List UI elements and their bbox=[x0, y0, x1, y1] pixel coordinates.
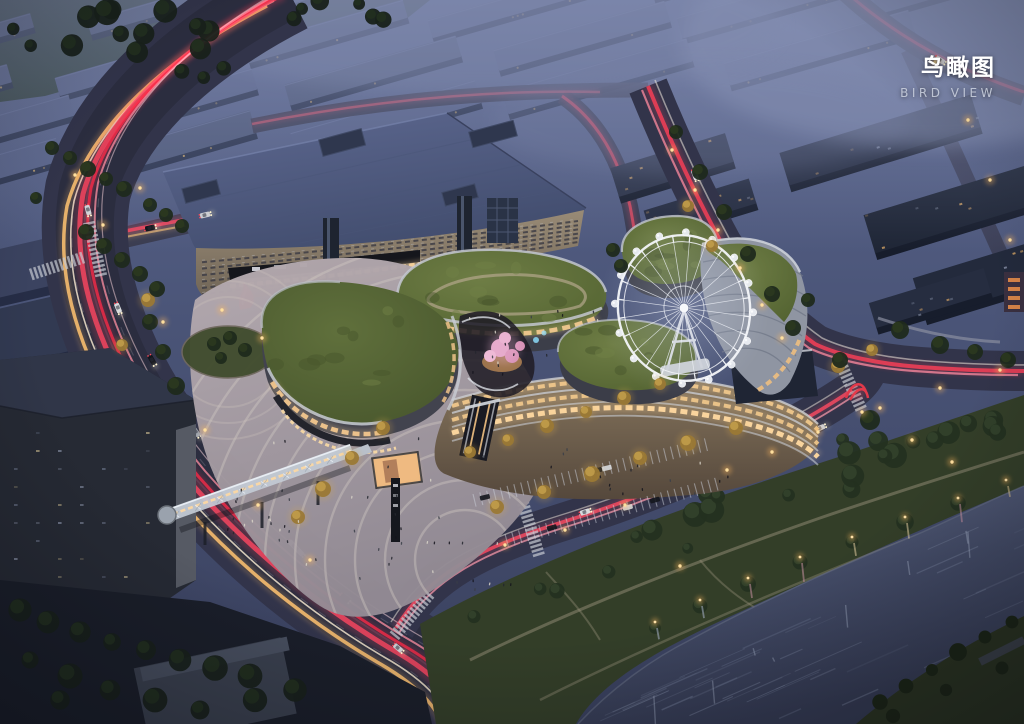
annotation-title-en: BIRD VIEW bbox=[900, 86, 996, 100]
bird-view-rendering: LV bbox=[0, 0, 1024, 724]
aerial-rendering: LV bbox=[0, 0, 1024, 724]
annotation-title-cn: 鸟瞰图 bbox=[900, 48, 996, 82]
vignette bbox=[0, 0, 1024, 724]
drawing-annotation: 鸟瞰图 BIRD VIEW bbox=[900, 48, 996, 100]
